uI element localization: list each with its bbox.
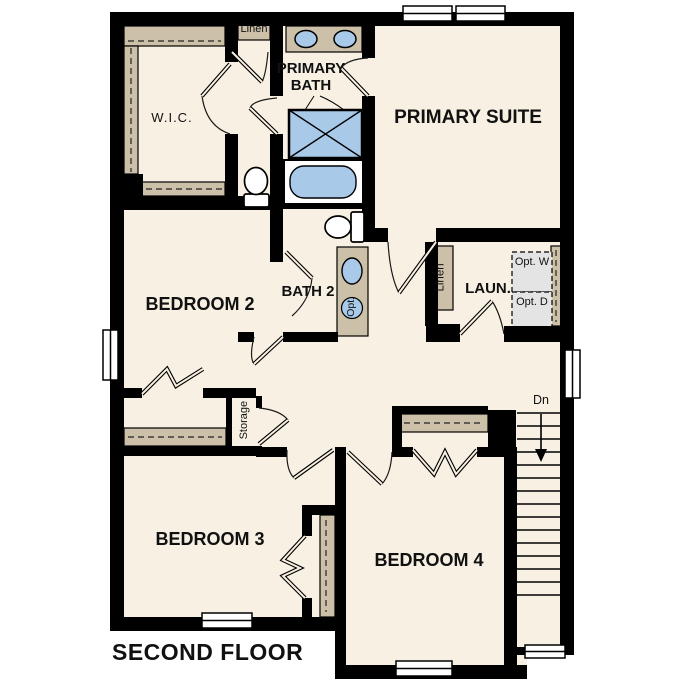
closet-label-storage: Storage [238, 390, 250, 450]
room-label-bedroom3: BEDROOM 3 [120, 529, 300, 549]
floor-plan: PRIMARY BATH PRIMARY SUITE W.I.C. Linen … [0, 0, 687, 687]
closet-label-linen-laundry: Linen [435, 247, 448, 307]
optional-sink-label: Opt. [346, 282, 358, 332]
room-label-primary-bath: PRIMARY BATH [261, 61, 361, 95]
shower [289, 110, 362, 158]
optional-dryer-label: Opt. D [512, 296, 552, 308]
closet-label-linen: Linen [236, 23, 272, 35]
optional-washer-label: Opt. W [512, 256, 552, 268]
room-label-wic: W.I.C. [127, 111, 217, 126]
bathtub [284, 160, 363, 204]
room-label-bedroom4: BEDROOM 4 [354, 550, 504, 570]
room-label-primary-suite: PRIMARY SUITE [388, 107, 548, 128]
floor-plan-drawing [0, 0, 687, 687]
toilet-primary [244, 168, 269, 208]
stairs-down-label: Dn [521, 393, 561, 407]
plan-title: SECOND FLOOR [112, 640, 412, 666]
room-label-bath2: BATH 2 [277, 284, 339, 301]
room-label-bedroom2: BEDROOM 2 [115, 294, 285, 314]
